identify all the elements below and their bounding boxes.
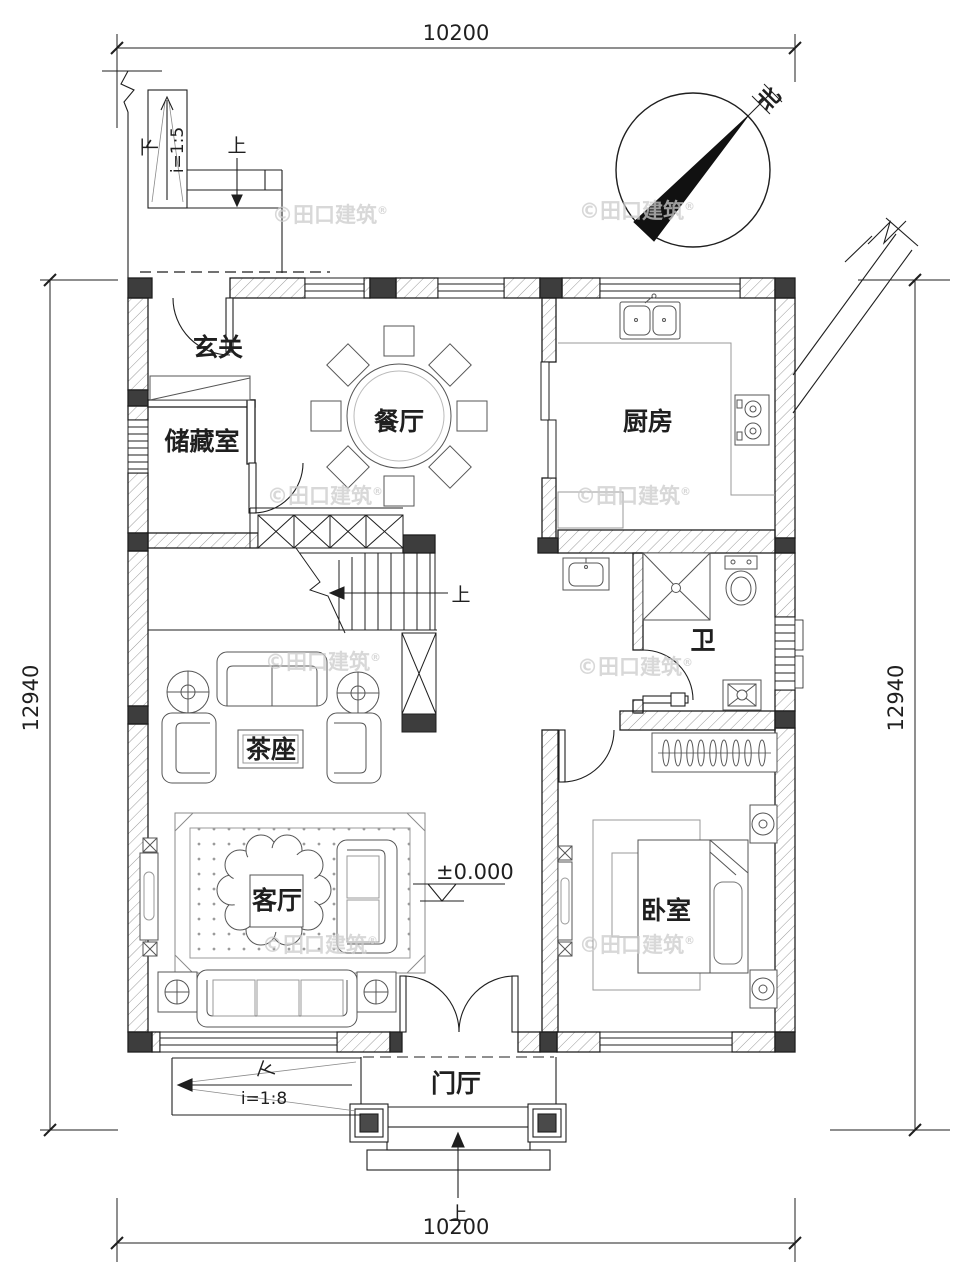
- right-dimension: 12940: [830, 274, 950, 1136]
- porch-up-arrow: 上: [448, 1133, 467, 1225]
- room-label-bedroom: 卧室: [641, 896, 691, 925]
- room-label-hall: 门厅: [431, 1069, 481, 1098]
- elevation-marker: ±0.000: [413, 860, 514, 901]
- room-label-entry: 玄关: [193, 333, 243, 362]
- window-top-3: [600, 278, 740, 298]
- porch-ramp-down: 下: [254, 1058, 281, 1083]
- side-table: [167, 671, 209, 713]
- northeast-ramp: [793, 218, 918, 413]
- kitchen-sliding-door: [541, 362, 556, 478]
- stair-direction-arrow: 上: [330, 584, 471, 606]
- porch-ramp: i=1:8 下: [172, 1058, 361, 1115]
- bedroom-tv-stand: [558, 846, 572, 956]
- storage-closet: [150, 376, 250, 400]
- watermark: ©田口建筑®: [579, 199, 695, 223]
- stair-rail-cabinet: [250, 508, 403, 548]
- porch-column: [350, 1104, 388, 1142]
- toilet: [725, 556, 757, 605]
- entry-ramp-down: 下: [139, 137, 161, 156]
- bedroom-bench: [612, 853, 638, 937]
- wardrobe: [652, 733, 777, 772]
- top-dimension-text: 10200: [423, 21, 490, 45]
- watermark: ©田口建筑®: [577, 655, 693, 679]
- watermark: ©田口建筑®: [272, 203, 388, 227]
- dining-chair: [311, 401, 341, 431]
- bedroom-furniture: [558, 733, 777, 1008]
- room-label-dining: 餐厅: [374, 407, 424, 436]
- dining-chair: [384, 326, 414, 356]
- corner-table: [158, 972, 197, 1012]
- window-top-2: [438, 278, 504, 298]
- living-room-furniture: [140, 813, 425, 1027]
- room-label-storage: 储藏室: [164, 427, 239, 456]
- entry-ramp-slope: i=1:5: [168, 127, 188, 173]
- porch-ramp-slope: i=1:8: [241, 1089, 287, 1109]
- room-label-living: 客厅: [252, 886, 302, 915]
- nightstand: [750, 970, 777, 1008]
- main-double-door: [400, 976, 518, 1032]
- window-top-1: [305, 278, 364, 298]
- room-label-tea: 茶座: [246, 735, 296, 764]
- right-dimension-text: 12940: [884, 665, 908, 732]
- left-dimension-text: 12940: [19, 665, 43, 732]
- bedroom-door: [559, 730, 614, 782]
- porch-column: [528, 1104, 566, 1142]
- nightstand: [750, 805, 777, 843]
- left-dimension: 12940: [19, 274, 118, 1136]
- window-bath-louver: [775, 617, 803, 690]
- porch-up-label: 上: [448, 1203, 467, 1225]
- room-label-bath: 卫: [690, 626, 715, 655]
- entry-platform-up: 上: [227, 135, 246, 157]
- floor-plan-page: 10200 10200 12940 12940 北: [0, 0, 960, 1284]
- stair-treads: [296, 548, 437, 633]
- under-stair-column: [402, 633, 436, 732]
- window-left-storage: [128, 420, 148, 473]
- watermark: ©田口建筑®: [575, 484, 691, 508]
- watermark: ©田口建筑®: [579, 933, 695, 957]
- north-label: 北: [753, 83, 786, 116]
- elevation-text: ±0.000: [436, 860, 514, 884]
- entry-ramp: i=1:5 下 上: [102, 71, 282, 278]
- stair-up-label: 上: [451, 584, 470, 606]
- watermark: ©田口建筑®: [267, 484, 383, 508]
- floor-drain: [723, 680, 761, 710]
- three-seat-sofa: [197, 970, 357, 1027]
- side-table: [337, 672, 379, 714]
- window-bottom-right: [600, 1032, 732, 1052]
- washbasin: [563, 558, 609, 590]
- floor-plan-drawing: 10200 10200 12940 12940 北: [0, 0, 960, 1284]
- watermark: ©田口建筑®: [265, 650, 381, 674]
- corner-table: [357, 972, 396, 1012]
- porch: 上 i=1:8 下: [172, 1057, 566, 1225]
- kitchen-stove: [735, 395, 769, 445]
- window-bottom-left: [160, 1032, 337, 1052]
- shower: [643, 553, 710, 620]
- room-label-kitchen: 厨房: [623, 407, 673, 436]
- tv-stand: [140, 838, 158, 956]
- watermark: ©田口建筑®: [262, 933, 378, 957]
- kitchen-sink: [620, 294, 680, 339]
- dining-chair: [457, 401, 487, 431]
- armchair: [327, 713, 381, 783]
- armchair: [162, 713, 216, 783]
- dining-chair: [384, 476, 414, 506]
- top-dimension: 10200: [111, 21, 801, 128]
